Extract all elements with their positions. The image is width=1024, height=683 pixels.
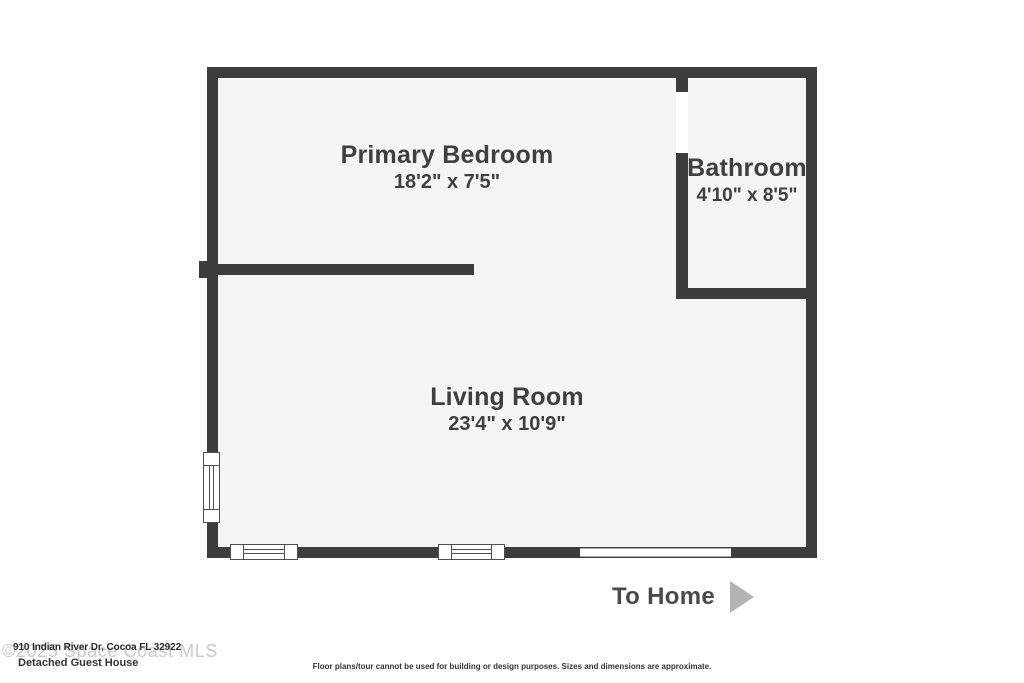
property-address: 910 Indian River Dr, Cocoa FL 32922 (13, 642, 181, 653)
room-dimensions: 4'10" x 8'5" (677, 182, 817, 209)
to-home-indicator: To Home (612, 581, 754, 613)
room-label-primary-bedroom: Primary Bedroom 18'2" x 7'5" (317, 141, 577, 196)
room-label-living-room: Living Room 23'4" x 10'9" (397, 383, 617, 438)
window-glass (243, 549, 285, 554)
room-name: Living Room (397, 383, 617, 411)
window-bottom-left (230, 544, 298, 560)
room-dimensions: 18'2" x 7'5" (317, 169, 577, 196)
window-glass (451, 549, 492, 554)
top-wall (207, 67, 817, 78)
bedroom-divider-wall (207, 264, 474, 275)
to-home-label: To Home (612, 583, 715, 611)
bathroom-wall-bottom (676, 288, 817, 299)
room-name: Primary Bedroom (317, 141, 577, 169)
room-dimensions: 23'4" x 10'9" (397, 411, 617, 438)
bathroom-door-opening (676, 92, 688, 153)
disclaimer-text: Floor plans/tour cannot be used for buil… (0, 662, 1024, 671)
room-name: Bathroom (677, 154, 817, 182)
room-label-bathroom: Bathroom 4'10" x 8'5" (677, 154, 817, 209)
right-wall (806, 67, 817, 558)
entry-opening (580, 548, 731, 557)
window-glass (209, 465, 214, 510)
window-left (203, 452, 220, 523)
floor-plan-page: Primary Bedroom 18'2" x 7'5" Bathroom 4'… (0, 0, 1024, 683)
to-home-arrow-icon (730, 581, 754, 613)
window-bottom-center (438, 544, 505, 560)
